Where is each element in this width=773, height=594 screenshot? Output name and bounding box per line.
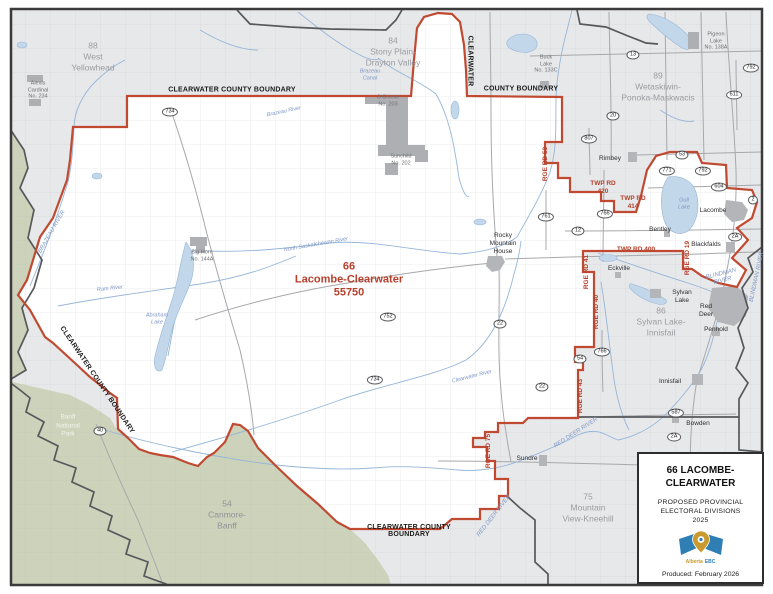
- division-number: 54: [208, 499, 246, 510]
- town-label-sylvan-lake: Sylvan Lake: [672, 289, 692, 305]
- division-number: 75: [562, 492, 613, 503]
- legend-title: 66 LACOMBE- CLEARWATER: [639, 465, 762, 490]
- road-shield-13: 13: [626, 51, 639, 60]
- division-label-88: 88 West Yellowhead: [71, 41, 114, 74]
- town-label-line: Mountain: [490, 240, 517, 248]
- road-shield-807: 807: [581, 135, 597, 144]
- ebc-logo: AlbertaEBC: [639, 530, 762, 565]
- division-name-line: Wetaskiwin-: [621, 82, 694, 93]
- road-shield-53: 53: [675, 151, 688, 160]
- town-label-lacombe: Lacombe: [700, 207, 727, 215]
- park-label-line: Park: [56, 430, 80, 439]
- legend-produced-date: Produced: February 2026: [639, 571, 762, 578]
- water-label-line: Gull: [678, 198, 690, 205]
- road-shield-771: 771: [659, 167, 675, 176]
- legend-title-line2: CLEARWATER: [639, 478, 762, 491]
- road-shield-766-south: 766: [594, 348, 610, 357]
- reserve-label-ochiese: O'Chiese No. 203: [377, 95, 399, 108]
- road-shield-734: 734: [162, 108, 178, 117]
- road-label-rge-rd-41: RGE RD 41: [583, 255, 591, 289]
- park-label-line: Banff: [56, 413, 80, 422]
- road-shield-54: 54: [573, 355, 586, 364]
- road-label-rge-rd-43: RGE RD 43: [577, 379, 585, 413]
- road-shield-22: 22: [493, 320, 506, 329]
- road-label-line: TWP RD: [590, 180, 616, 188]
- town-label-line: Rocky: [490, 232, 517, 240]
- division-name-line: View-Kneehill: [562, 514, 613, 525]
- focal-division-number: 66: [295, 261, 403, 274]
- division-name-line: Ponoka-Maskwacis: [621, 93, 694, 104]
- county-boundary-label-vertical: CLEARWATER: [467, 36, 474, 87]
- division-name-line: Mountain: [562, 503, 613, 514]
- road-shield-40: 40: [93, 427, 106, 436]
- reserve-label-pigeon-lake: Pigeon Lake No. 138A: [705, 31, 728, 51]
- county-boundary-bottom-line1: CLEARWATER COUNTY: [367, 524, 451, 531]
- town-label-line: House: [490, 248, 517, 256]
- division-name-line: Canmore-: [208, 510, 246, 521]
- lake-label-gull: Gull Lake: [678, 198, 690, 211]
- town-label-bentley: Bentley: [649, 226, 671, 234]
- town-label-innisfail: Innisfail: [659, 378, 681, 386]
- ebc-logo-wordmark: AlbertaEBC: [639, 560, 762, 565]
- town-label-rimbey: Rimbey: [599, 155, 621, 163]
- town-label-line: Sylvan: [672, 289, 692, 297]
- road-shield-752: 752: [380, 313, 396, 322]
- reserve-label-line: No. 144A: [191, 256, 214, 263]
- town-label-eckville: Eckville: [608, 265, 630, 273]
- water-label-line: Canal: [360, 75, 381, 82]
- legend-subtitle-line2: ELECTORAL DIVISIONS: [639, 507, 762, 516]
- lake-label-abraham: Abraham Lake: [146, 313, 168, 326]
- division-name-line: Sylvan Lake-: [636, 317, 685, 328]
- reserve-label-line: Sunchild: [390, 154, 411, 161]
- road-shield-12: 12: [571, 227, 584, 236]
- division-number: 84: [366, 36, 421, 47]
- canal-label-brazeau: Brazeau Canal: [360, 69, 381, 82]
- focal-division-name: Lacombe-Clearwater: [295, 274, 403, 287]
- division-label-54: 54 Canmore- Banff: [208, 499, 246, 532]
- division-name-line: Banff: [208, 521, 246, 532]
- road-shield-761: 761: [538, 213, 554, 222]
- reserve-label-sunchild: Sunchild No. 202: [390, 154, 411, 167]
- road-label-twp-rd-420: TWP RD 420: [590, 180, 616, 196]
- road-label-twp-rd-400: TWP RD 400: [617, 246, 655, 254]
- road-shield-20: 20: [606, 112, 619, 121]
- road-shield-2: 2: [748, 196, 758, 205]
- road-shield-604: 604: [711, 183, 727, 192]
- town-label-bowden: Bowden: [686, 420, 710, 428]
- town-label-penhold: Penhold: [704, 326, 728, 334]
- water-label-line: Abraham: [146, 313, 168, 320]
- road-label-line: TWP RD: [620, 195, 646, 203]
- division-name-line: Yellowhead: [71, 63, 114, 74]
- legend-subtitle-year: 2025: [639, 516, 762, 525]
- legend-subtitle: PROPOSED PROVINCIAL ELECTORAL DIVISIONS …: [639, 498, 762, 525]
- legend-subtitle-line1: PROPOSED PROVINCIAL: [639, 498, 762, 507]
- town-label-sundre: Sundre: [517, 455, 538, 463]
- town-label-rocky-mountain-house: Rocky Mountain House: [490, 232, 517, 256]
- division-name-line: Stony Plain-: [366, 47, 421, 58]
- road-shield-766: 766: [597, 210, 613, 219]
- reserve-label-line: No. 138A: [705, 44, 728, 51]
- division-name-line: Drayton Valley: [366, 58, 421, 69]
- reserve-label-line: Alexis: [28, 80, 48, 87]
- county-boundary-label-vertical-rest: COUNTY BOUNDARY: [484, 86, 559, 93]
- road-shield-587: 587: [668, 409, 684, 418]
- ebc-logo-word-ebc: EBC: [705, 559, 716, 565]
- reserve-label-buck-lake: Buck Lake No. 133C: [534, 54, 557, 74]
- division-label-84: 84 Stony Plain- Drayton Valley: [366, 36, 421, 69]
- focal-division-label: 66 Lacombe-Clearwater 55750: [295, 261, 403, 300]
- division-number: 89: [621, 71, 694, 82]
- county-boundary-label-top: CLEARWATER COUNTY BOUNDARY: [168, 87, 295, 94]
- road-label-line: 414: [620, 203, 646, 211]
- road-shield-611: 611: [726, 91, 742, 100]
- legend-title-line1: 66 LACOMBE-: [639, 465, 762, 478]
- reserve-label-line: No. 133C: [534, 67, 557, 74]
- road-shield-2a-south: 2A: [667, 433, 681, 442]
- ebc-logo-icon: [678, 530, 724, 562]
- division-label-86: 86 Sylvan Lake- Innisfail: [636, 306, 685, 339]
- division-number: 86: [636, 306, 685, 317]
- town-label-blackfalds: Blackfalds: [691, 241, 721, 249]
- road-label-twp-rd-414: TWP RD 414: [620, 195, 646, 211]
- county-boundary-label-bottom: CLEARWATER COUNTY BOUNDARY: [367, 524, 451, 538]
- town-label-line: Lake: [672, 297, 692, 305]
- road-shield-734-south: 734: [367, 376, 383, 385]
- road-shield-792: 792: [695, 167, 711, 176]
- water-label-line: Lake: [678, 204, 690, 211]
- reserve-label-line: No. 203: [377, 101, 399, 108]
- reserve-label-line: O'Chiese: [377, 95, 399, 102]
- division-name-line: West: [71, 52, 114, 63]
- road-shield-2a: 2A: [728, 233, 742, 242]
- reserve-label-alexis-cardinal: Alexis Cardinal No. 234: [28, 80, 48, 100]
- road-label-line: 420: [590, 188, 616, 196]
- reserve-label-line: Big Horn: [191, 250, 214, 257]
- town-label-line: Red: [699, 303, 713, 311]
- map-page: 88 West Yellowhead 84 Stony Plain- Drayt…: [0, 0, 773, 594]
- road-shield-792-north: 792: [743, 64, 759, 73]
- park-label-banff: Banff National Park: [56, 413, 80, 439]
- town-label-red-deer: Red Deer: [699, 303, 713, 319]
- division-number: 88: [71, 41, 114, 52]
- road-label-rge-rd-75: RGE RD 75: [485, 434, 493, 468]
- legend-box: 66 LACOMBE- CLEARWATER PROPOSED PROVINCI…: [637, 452, 764, 584]
- division-name-line: Innisfail: [636, 328, 685, 339]
- water-label-line: Brazeau: [360, 69, 381, 76]
- reserve-label-line: Pigeon: [705, 31, 728, 38]
- reserve-label-big-horn: Big Horn No. 144A: [191, 250, 214, 263]
- water-label-line: Lake: [146, 319, 168, 326]
- reserve-label-line: No. 234: [28, 93, 48, 100]
- road-label-rge-rd-40: RGE RD 40: [593, 295, 601, 329]
- town-label-line: Deer: [699, 311, 713, 319]
- county-boundary-bottom-line2: BOUNDARY: [367, 531, 451, 538]
- road-label-rge-rd-53: RGE RD 53: [542, 147, 550, 181]
- road-shield-22-south: 22: [535, 383, 548, 392]
- division-label-89: 89 Wetaskiwin- Ponoka-Maskwacis: [621, 71, 694, 104]
- division-label-75: 75 Mountain View-Kneehill: [562, 492, 613, 525]
- focal-division-population: 55750: [295, 287, 403, 300]
- reserve-label-line: No. 202: [390, 160, 411, 167]
- park-label-line: National: [56, 422, 80, 431]
- ebc-logo-word-alberta: Alberta: [686, 559, 703, 565]
